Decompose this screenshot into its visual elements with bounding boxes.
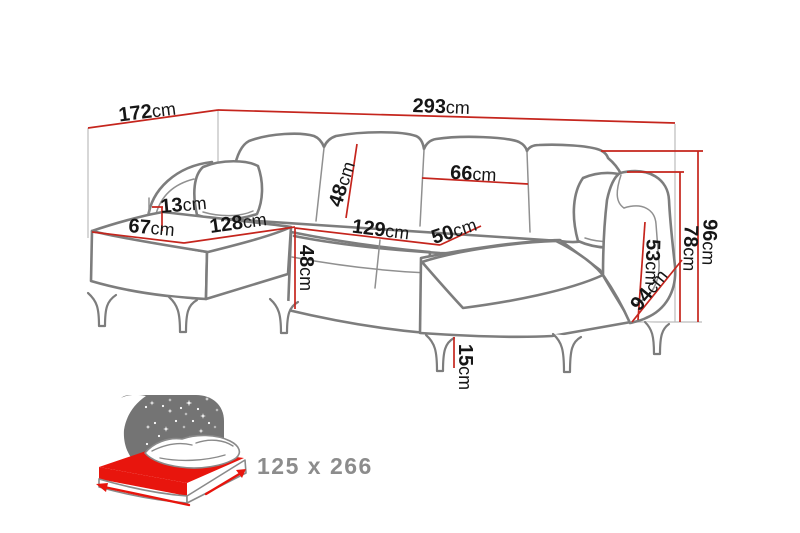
dim-label-leg-height: 15cm xyxy=(454,344,476,390)
dim-label-total-width: 293cm xyxy=(412,95,470,119)
star-dot xyxy=(192,420,194,422)
star-dot xyxy=(197,408,199,410)
sofa-leg xyxy=(645,322,669,354)
dim-label-seat-height: 48cm xyxy=(295,245,317,291)
star-dot xyxy=(180,407,182,409)
sleeping-area-label: 125 x 266 xyxy=(257,453,373,479)
star-dot xyxy=(145,406,147,408)
sofa-dimension-diagram: 172cm 293cm 13cm 67cm 128cm 48cm 66cm 12… xyxy=(0,0,800,533)
dim-label-total-height: 96cm xyxy=(697,219,721,266)
length-arrowhead-icon xyxy=(96,483,108,492)
dim-label-total-depth: 172cm xyxy=(117,98,177,127)
dim-label-chaise-width: 67cm xyxy=(128,215,176,241)
sofa-drawing xyxy=(88,132,675,372)
star-dot xyxy=(175,420,177,422)
sofa-leg xyxy=(169,297,197,332)
sofa-leg xyxy=(553,334,581,372)
star-dot xyxy=(158,435,160,437)
sofa-leg xyxy=(426,335,454,371)
star-dot xyxy=(208,422,210,424)
star-dot xyxy=(162,405,164,407)
sofa-leg xyxy=(88,293,116,326)
star-dot xyxy=(146,443,148,445)
bed-icon xyxy=(96,395,246,505)
dim-label-back-cushion-width: 66cm xyxy=(450,162,497,186)
diagram-canvas: 172cm 293cm 13cm 67cm 128cm 48cm 66cm 12… xyxy=(0,0,800,533)
star-dot xyxy=(154,422,156,424)
sofa-leg xyxy=(270,299,298,333)
